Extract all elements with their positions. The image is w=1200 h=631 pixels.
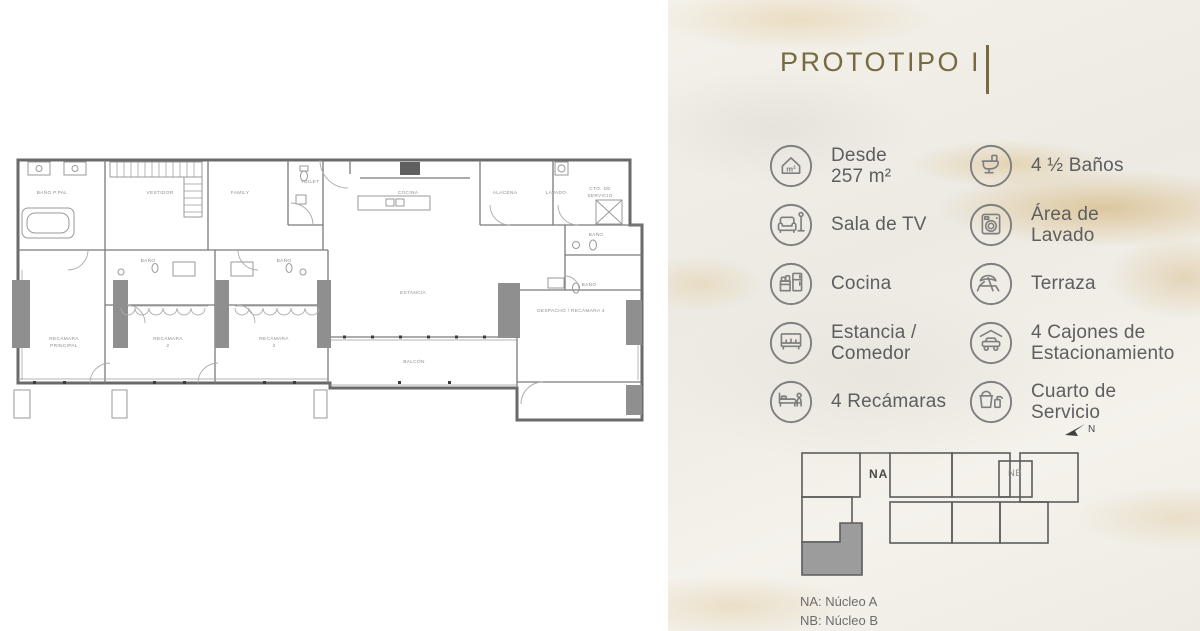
feature-label: Estancia / Comedor [831,322,916,364]
svg-text:m²: m² [786,164,796,173]
feature-cocina: Cocina [768,254,968,313]
washer-icon [968,202,1014,248]
feature-label: Cocina [831,273,891,294]
room-label: FAMILY [231,190,250,196]
feature-label: Terraza [1031,273,1096,294]
terrace-icon [968,261,1014,307]
feature-estacionamiento: 4 Cajones de Estacionamiento [968,313,1200,372]
room-label: VESTIDOR [147,190,174,196]
dining-icon [768,320,814,366]
sink [64,162,86,175]
parking-icon [968,320,1014,366]
feature-sala-tv: Sala de TV [768,195,968,254]
feature-label: 4 Cajones de Estacionamiento [1031,322,1174,364]
room-label: TOILET [301,179,320,185]
info-panel: PROTOTIPO I m² Desde 257 m² 4 ½ Baños [668,0,1200,631]
room-label: CTO. DE [589,186,610,192]
room-label: BALCÓN [403,358,425,365]
nucleo-b-label: NB [1008,468,1022,479]
room-label: BAÑO [589,231,604,238]
page-title: PROTOTIPO I [780,47,981,78]
room-label: PRINCIPAL [50,343,78,349]
room-label: RECÁMARA [259,335,289,342]
legend-line-nb: NB: Núcleo B [800,611,878,630]
stove [400,162,420,175]
toilet-icon [968,143,1014,189]
sofa-icon [768,202,814,248]
room-label: DESPACHO / RECÁMARA 4 [537,307,605,314]
kitchen-icon [768,261,814,307]
highlighted-unit [802,523,862,575]
key-plan-legend: NA: Núcleo A NB: Núcleo B [800,592,878,630]
room-label: RECÁMARA [153,335,183,342]
feature-terraza: Terraza [968,254,1200,313]
room-label: ALACENA [493,190,518,196]
legend-line-na: NA: Núcleo A [800,592,878,611]
north-label: N [1088,424,1095,435]
room-label: RECÁMARA [49,335,79,342]
room-label: SERVICIO [587,193,612,199]
washer-fixture [555,162,568,175]
title-divider [986,45,989,94]
feature-label: Desde 257 m² [831,145,891,187]
feature-label: Cuarto de Servicio [1031,381,1116,423]
closet-scallops [121,308,205,315]
feature-lavado: Área de Lavado [968,195,1200,254]
feature-list: m² Desde 257 m² 4 ½ Baños [768,136,1200,431]
room-label: BAÑO [582,281,597,288]
columns [12,280,642,418]
room-label: BAÑO [141,257,156,264]
feature-banos: 4 ½ Baños [968,136,1200,195]
feature-label: Área de Lavado [1031,204,1099,246]
feature-label: 4 ½ Baños [1031,155,1124,176]
feature-label: 4 Recámaras [831,391,946,412]
toilet-fixture [300,166,308,171]
area-icon: m² [768,143,814,189]
feature-estancia: Estancia / Comedor [768,313,968,372]
room-label: LAVADO [546,190,567,196]
nucleo-a-label: NA [869,467,888,481]
feature-label: Sala de TV [831,214,927,235]
room-label: BAÑO P.PAL [37,189,68,196]
feature-area: m² Desde 257 m² [768,136,968,195]
floor-plan-page: BAÑO P.PALVESTIDORFAMILYTOILETCOCINAALAC… [0,0,668,631]
key-plan: N NA NB [795,418,1095,585]
room-label: BAÑO [277,257,292,264]
sink [28,162,50,175]
room-label: 3 [273,343,276,349]
room-label: COCINA [398,190,419,196]
room-label: ESTANCIA [400,290,427,296]
key-plan-units [802,453,1078,575]
north-arrow-icon [1065,424,1085,436]
floor-plan: BAÑO P.PALVESTIDORFAMILYTOILETCOCINAALAC… [8,150,650,430]
room-label: 2 [167,343,170,349]
